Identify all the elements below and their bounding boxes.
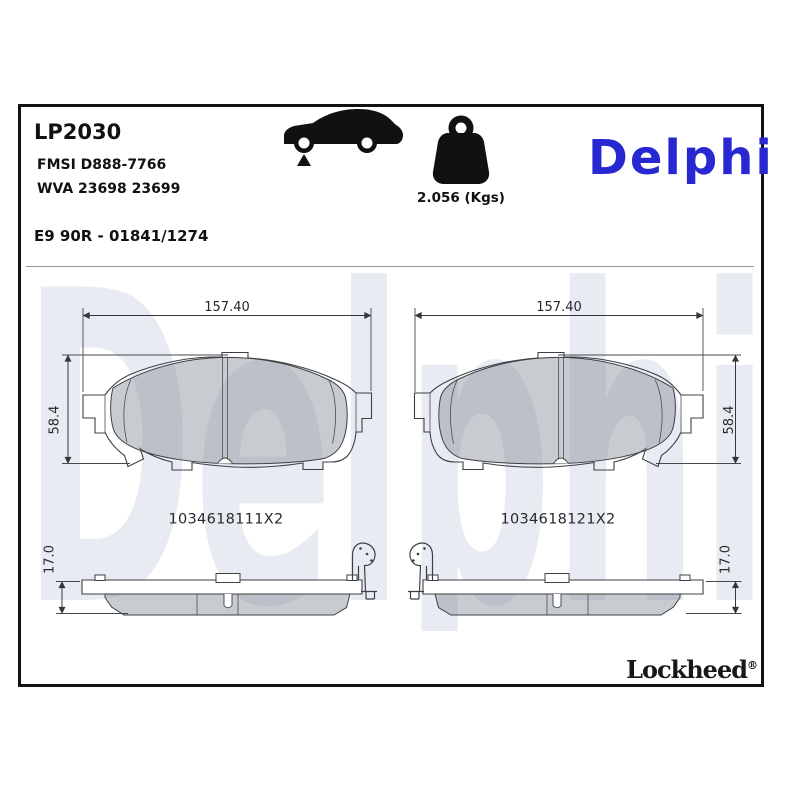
datasheet-page: Delphi 157.40 58.4 157.40 58.4 bbox=[0, 0, 800, 800]
wva-number: WVA 23698 23699 bbox=[37, 181, 180, 197]
dim-label: 17.0 bbox=[43, 545, 58, 574]
delphi-watermark: Delphi bbox=[22, 202, 770, 702]
dim-label: 58.4 bbox=[48, 406, 63, 435]
part-reference-left: 1034618111X2 bbox=[168, 512, 283, 528]
dim-label: 157.40 bbox=[536, 300, 582, 315]
delphi-logo: Delphi bbox=[588, 134, 774, 182]
kettlebell-weight-icon bbox=[433, 119, 489, 184]
registered-trademark-symbol: ® bbox=[747, 659, 757, 672]
homologation-number: E9 90R - 01841/1274 bbox=[34, 227, 208, 245]
fmsi-number: FMSI D888-7766 bbox=[37, 157, 166, 173]
lockheed-logo: Lockheed® bbox=[626, 658, 757, 682]
front-axle-marker-icon bbox=[297, 154, 311, 166]
dim-label: 17.0 bbox=[719, 545, 734, 574]
product-code: LP2030 bbox=[34, 120, 121, 144]
lockheed-logo-text: Lockheed bbox=[626, 655, 747, 684]
car-front-axle-icon bbox=[284, 109, 403, 166]
part-reference-right: 1034618121X2 bbox=[500, 512, 615, 528]
dim-label: 58.4 bbox=[722, 406, 737, 435]
dim-label: 157.40 bbox=[204, 300, 250, 315]
header-divider bbox=[26, 266, 754, 269]
weight-value: 2.056 (Kgs) bbox=[417, 190, 505, 206]
